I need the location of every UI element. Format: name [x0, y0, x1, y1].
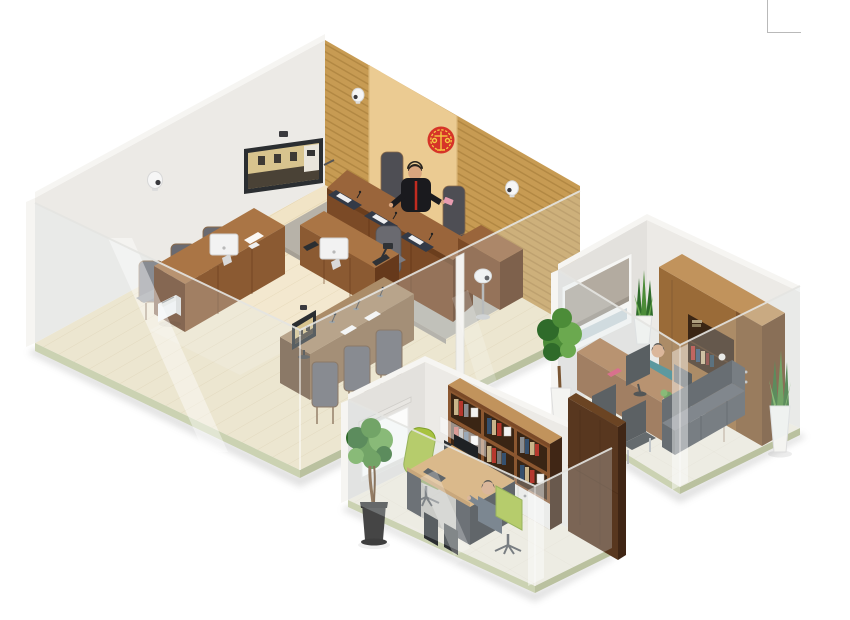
office-left-wall-edge: [341, 400, 348, 503]
monitor-top-camera-icon: [300, 305, 307, 310]
tv-feed-figure: [290, 152, 297, 161]
render-canvas: [0, 0, 850, 620]
photo-frame: [504, 427, 511, 436]
isometric-scene: [0, 0, 850, 620]
tv-top-camera-icon: [279, 131, 288, 137]
tv-feed-monitor: [307, 150, 315, 156]
tv-feed-figure: [274, 154, 281, 163]
court-emblem: [428, 127, 455, 154]
courtroom-left-wall-edge: [26, 198, 35, 347]
tv-feed-panel: [304, 144, 319, 172]
corner-mark: [768, 0, 802, 33]
glass-reflection: [528, 482, 544, 586]
photo-frame: [471, 408, 478, 417]
tv-feed-figure: [258, 156, 265, 165]
cabinet-side: [618, 422, 626, 560]
